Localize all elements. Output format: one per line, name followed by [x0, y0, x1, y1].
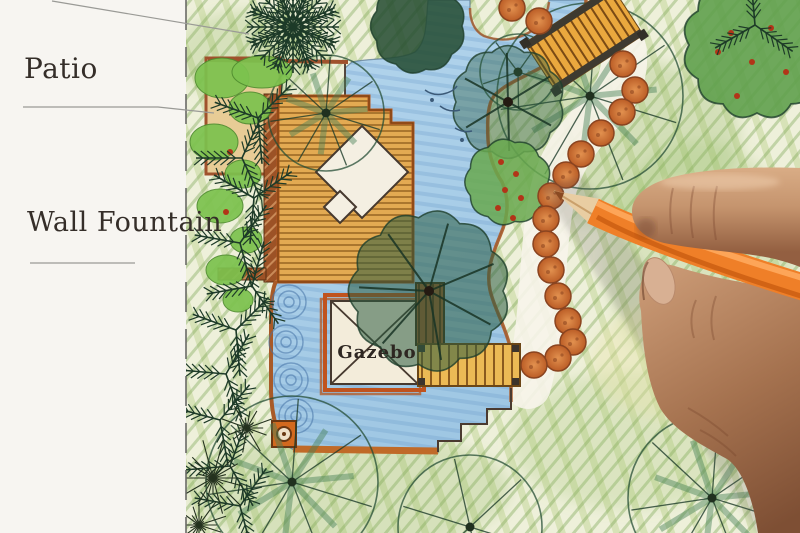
finger-highlight — [660, 174, 780, 190]
label-patio: Patio — [24, 52, 98, 85]
label-wall-fountain: Wall Fountain — [27, 207, 222, 238]
plan-drawing — [0, 0, 800, 533]
landscape-plan-photo: Patio Wall Fountain Gazebo — [0, 0, 800, 533]
label-gazebo: Gazebo — [330, 342, 424, 363]
fingertip-shading — [636, 218, 656, 238]
